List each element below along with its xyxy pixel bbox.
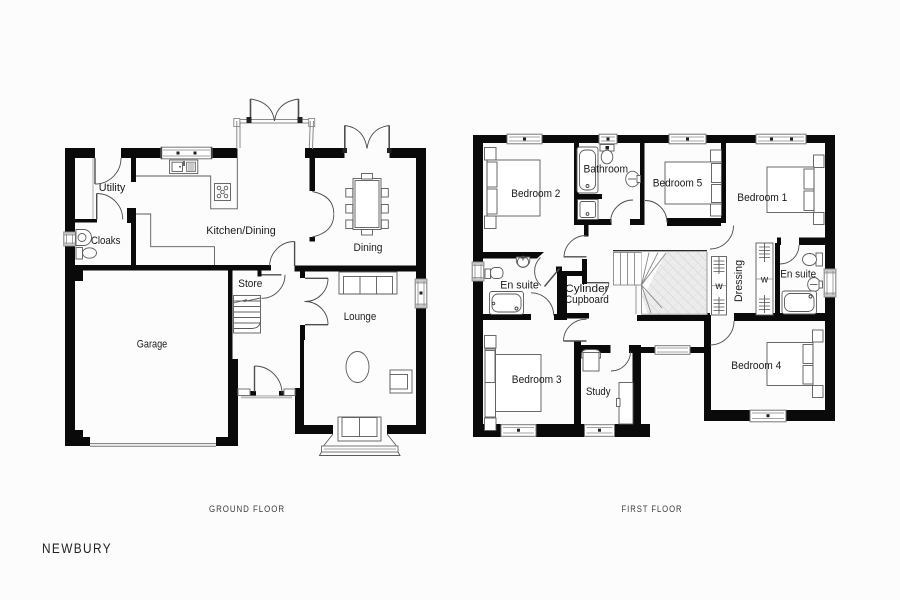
- svg-text:Study: Study: [586, 386, 611, 398]
- svg-text:Utility: Utility: [99, 182, 126, 194]
- svg-text:Cloaks: Cloaks: [91, 235, 121, 247]
- svg-text:Cupboard: Cupboard: [565, 294, 609, 306]
- svg-text:Bedroom 4: Bedroom 4: [731, 360, 781, 372]
- svg-text:Dressing: Dressing: [733, 260, 745, 302]
- svg-text:Lounge: Lounge: [344, 311, 377, 323]
- svg-text:Bedroom 3: Bedroom 3: [512, 374, 562, 386]
- svg-text:w: w: [760, 275, 769, 286]
- svg-text:Bathroom: Bathroom: [584, 164, 629, 176]
- svg-text:Bedroom 5: Bedroom 5: [653, 178, 703, 190]
- svg-text:Kitchen/Dining: Kitchen/Dining: [206, 225, 276, 237]
- svg-text:Bedroom 2: Bedroom 2: [511, 188, 560, 200]
- svg-text:Dining: Dining: [354, 242, 383, 254]
- svg-text:FIRST FLOOR: FIRST FLOOR: [622, 504, 683, 514]
- svg-text:Garage: Garage: [137, 339, 168, 351]
- svg-text:Store: Store: [238, 278, 262, 290]
- svg-text:w: w: [714, 281, 723, 292]
- svg-text:En suite: En suite: [500, 280, 539, 292]
- svg-text:Bedroom 1: Bedroom 1: [737, 192, 787, 204]
- svg-text:En suite: En suite: [780, 269, 816, 281]
- svg-text:NEWBURY: NEWBURY: [42, 541, 112, 556]
- svg-text:GROUND FLOOR: GROUND FLOOR: [209, 504, 285, 514]
